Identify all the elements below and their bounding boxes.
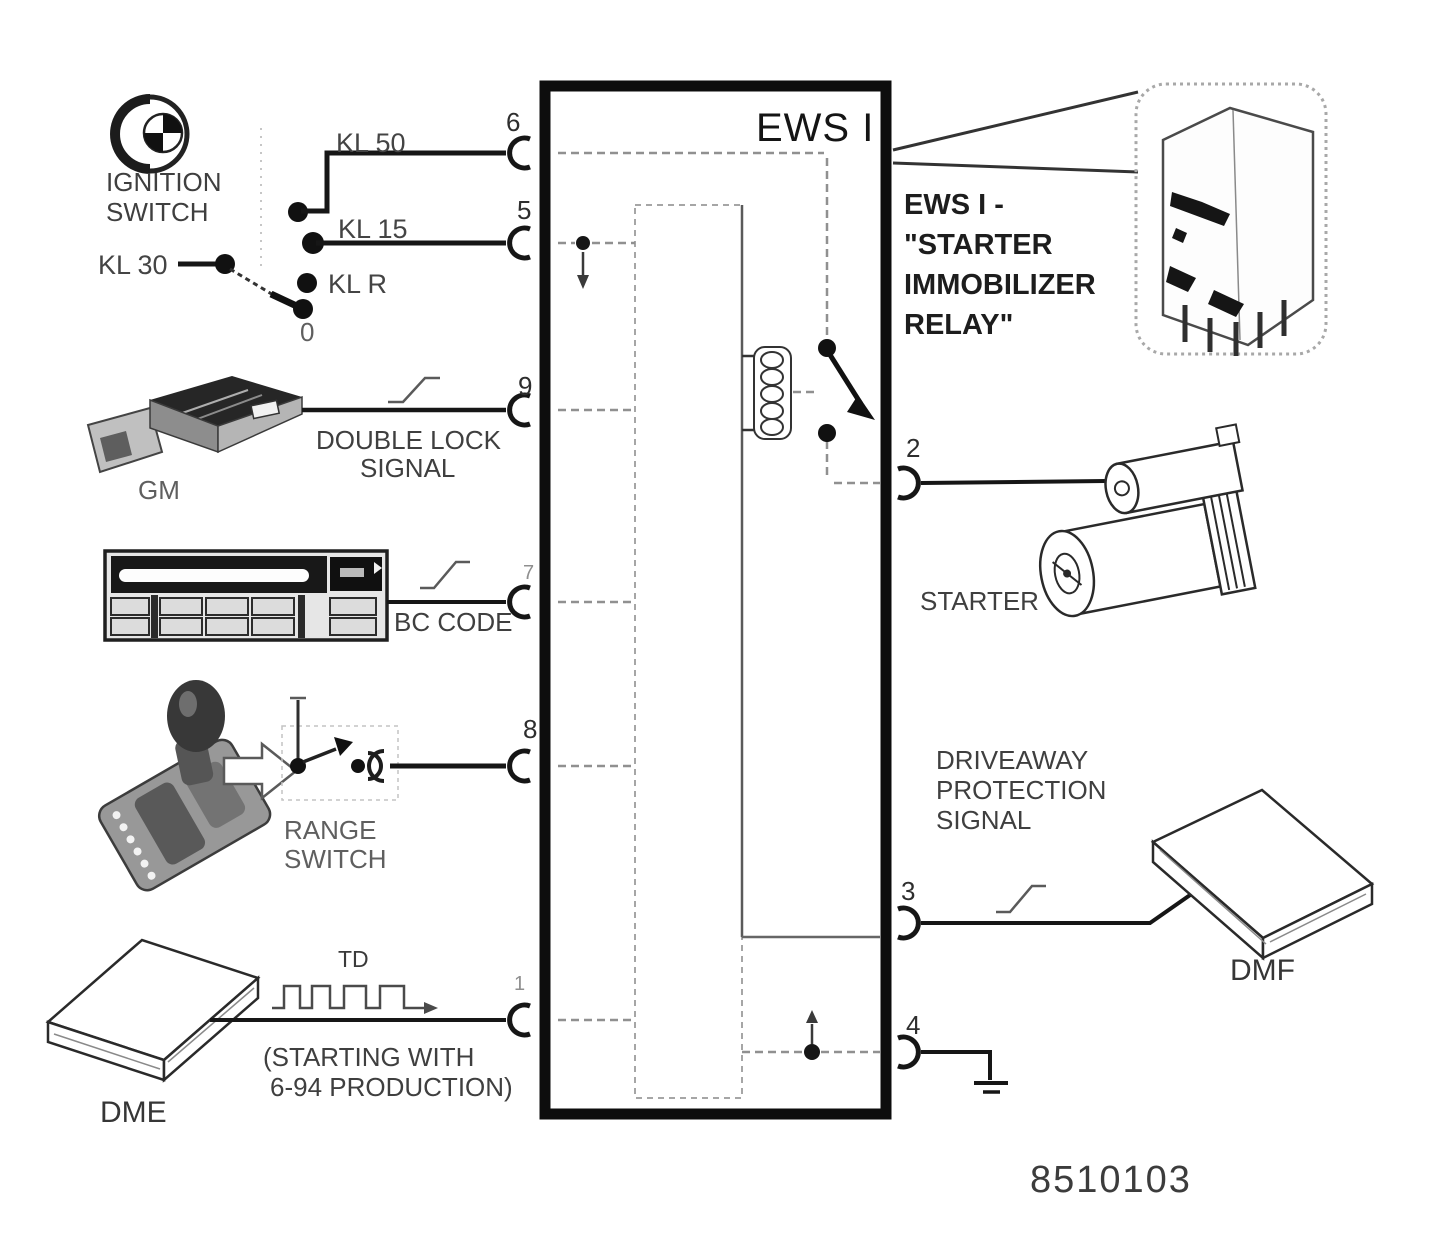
dmf-module-image [1153,790,1372,958]
figure-number: 8510103 [1030,1159,1192,1201]
relay-callout-line2: "STARTER [904,229,1053,261]
ignition-switch-label-line2: SWITCH [106,197,209,227]
kl50-wire-to-pin6 [301,153,506,211]
kl30-label: KL 30 [98,250,168,280]
bmw-logo [113,97,187,171]
pin5-arrow-head [577,275,589,289]
pin3-connector [898,908,918,938]
contact-lower-dot [818,424,836,442]
starter-motor-image [1032,424,1256,627]
double-lock-signal-line1: DOUBLE LOCK [316,425,502,455]
ground-connection [921,1052,1008,1092]
pin4-wire-to-ground [921,1052,990,1080]
pin4-arrow-head [806,1010,818,1023]
ews-control-unit-box: EWS I [545,86,886,1114]
inner-unit-outline [635,205,742,1098]
klr-label: KL R [328,269,387,299]
pin6-connector [510,138,530,168]
pin8-connector [510,751,530,781]
pin5-connector [510,228,530,258]
left-pin-connectors [510,138,530,1035]
starter-label: STARTER [920,586,1039,616]
pin-label-9: 9 [518,371,532,401]
junction-dot-pin5 [576,236,590,250]
td-label: TD [338,946,369,972]
board-computer-image [105,551,387,640]
pin-label-7: 7 [523,562,534,584]
ramp-signal-icon-gm [388,378,440,402]
pin-label-6: 6 [506,107,520,137]
coil-stubs [742,356,754,430]
dme-module-image [48,940,258,1080]
pin-label-5: 5 [517,195,531,225]
range-switch-label-line2: SWITCH [284,844,387,874]
contact-blade-arrow [847,395,875,420]
kl15-label: KL 15 [338,214,408,244]
relay-callout-line1: EWS I - [904,189,1004,221]
internal-traces [558,153,880,1052]
driveaway-signal-line2: PROTECTION [936,775,1106,805]
pin3-wire-to-dmf [921,886,1203,923]
relay-callout-line4: RELAY" [904,309,1013,341]
ews-wiring-diagram: EWS I [0,0,1440,1260]
pin-label-2: 2 [906,433,920,463]
wiring-diagram-page: EWS I [0,0,1440,1260]
relay-contact-switch [818,339,875,442]
driveaway-signal-line1: DRIVEAWAY [936,745,1088,775]
pin-label-1: 1 [514,973,525,995]
range-blade-arrow [334,737,353,756]
range-switch-symbol [282,698,398,800]
callout-line-upper [893,92,1138,150]
klr-contact-dot [297,273,317,293]
pin4-connector [898,1037,918,1067]
ramp-signal-icon-bc [420,562,470,588]
range-switch-label-line1: RANGE [284,815,376,845]
switch-blade-end-dot [293,299,313,319]
gm-module-image [88,376,302,472]
ews-box-outline [545,86,886,1114]
pin-label-3: 3 [901,876,915,906]
kl50-label: KL 50 [336,128,406,158]
junction-dot-pin4 [804,1044,820,1060]
gm-label: GM [138,475,180,505]
right-pin-connectors [898,468,918,1067]
relay-callout-line3: IMMOBILIZER [904,269,1096,301]
contact-blade [827,350,861,404]
pin1-connector [510,1005,530,1035]
pin2-connector [898,468,918,498]
bc-code-label: BC CODE [394,607,512,637]
pin7-connector [510,587,530,617]
coil-body [754,347,791,439]
ramp-signal-icon-dmf [996,886,1046,912]
pin2-wire-to-starter [921,481,1106,483]
trace-pin2 [827,441,880,483]
ews-box-label: EWS I [756,106,874,150]
pin-label-4: 4 [906,1010,920,1040]
dmf-label: DMF [1230,954,1295,987]
driveaway-signal-line3: SIGNAL [936,805,1031,835]
pin-label-8: 8 [523,714,537,744]
position-0-label: 0 [300,317,314,347]
relay-coil [742,347,791,439]
starter-immobilizer-relay-image [1136,84,1326,356]
dme-note-line2: 6-94 PRODUCTION) [270,1072,513,1102]
callout-line-lower [893,163,1138,172]
dme-label: DME [100,1096,167,1129]
gear-selector-image [95,680,275,895]
double-lock-signal-line2: SIGNAL [360,453,455,483]
ignition-switch-label-line1: IGNITION [106,167,222,197]
dme-note-line1: (STARTING WITH [263,1042,474,1072]
td-pulse-signal-icon [272,986,438,1014]
